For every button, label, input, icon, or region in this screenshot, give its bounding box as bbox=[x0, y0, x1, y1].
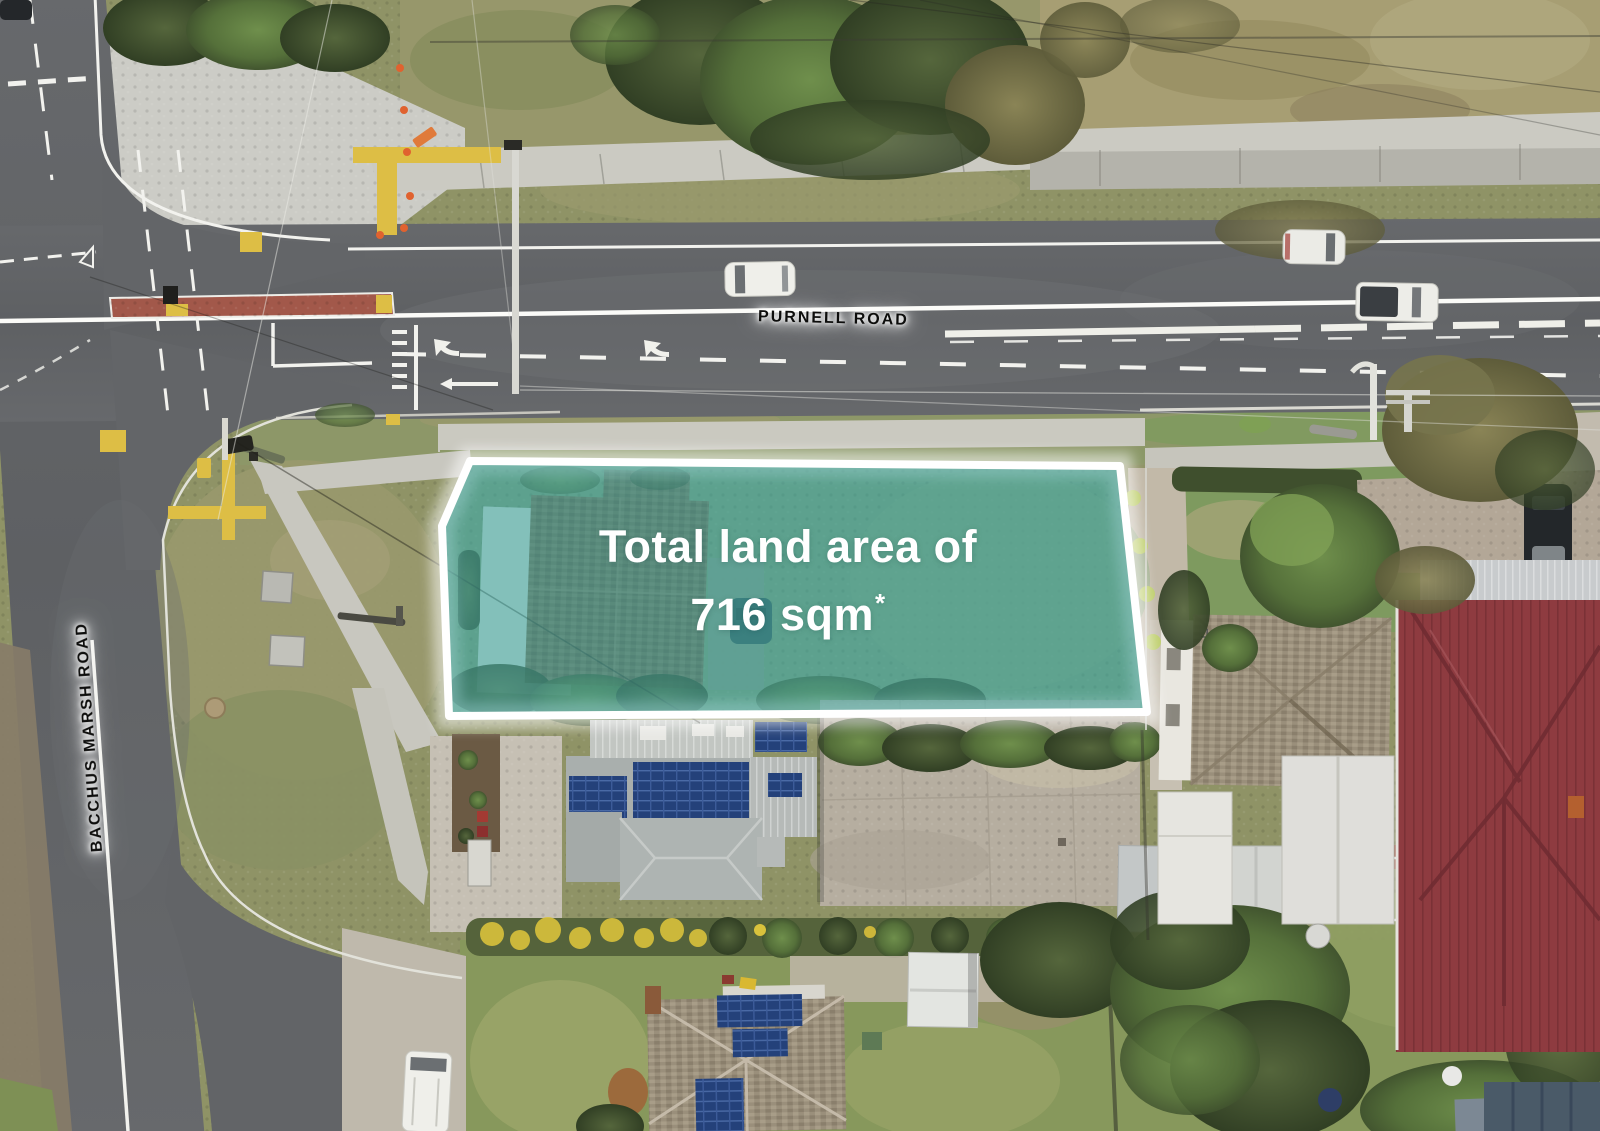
white-extension bbox=[1158, 792, 1232, 924]
utility-box bbox=[261, 571, 293, 603]
solar-array bbox=[695, 1078, 744, 1131]
white-post bbox=[222, 418, 228, 460]
dark-car bbox=[0, 0, 32, 20]
power-pole bbox=[1404, 390, 1412, 432]
solar-array bbox=[569, 776, 627, 818]
satellite-dish bbox=[1442, 1066, 1462, 1086]
bin bbox=[477, 811, 488, 822]
yellow-equipment bbox=[739, 977, 756, 990]
rust-container bbox=[645, 986, 661, 1014]
red-roof-house bbox=[1375, 546, 1600, 1131]
manhole bbox=[205, 698, 225, 718]
utility-box bbox=[269, 635, 305, 667]
hvac-unit bbox=[1306, 924, 1330, 948]
purnell-road-label: PURNELL ROAD bbox=[758, 308, 909, 330]
aerial-photo: PURNELL ROAD BACCHUS MARSH ROAD Total la… bbox=[0, 0, 1600, 1131]
frontage-footpath bbox=[438, 418, 1145, 452]
solar-array bbox=[633, 762, 749, 818]
building-roof-west bbox=[566, 812, 622, 882]
solar-array bbox=[768, 773, 802, 797]
solar-array bbox=[732, 1028, 787, 1057]
trampoline bbox=[1318, 1088, 1342, 1112]
white-suv bbox=[725, 261, 796, 296]
headline-asterisk: * bbox=[875, 588, 886, 618]
green-box bbox=[862, 1032, 882, 1050]
headline-area-value: 716 sqm bbox=[690, 589, 874, 640]
signboard bbox=[468, 840, 491, 886]
white-ute bbox=[1356, 282, 1439, 321]
signal-mast bbox=[512, 146, 519, 394]
solar-array bbox=[717, 994, 803, 1027]
traffic-signal bbox=[504, 140, 522, 150]
white-sedan bbox=[1283, 229, 1346, 264]
white-van bbox=[402, 1051, 452, 1131]
street-light-pole bbox=[1370, 364, 1377, 440]
retaining-wall bbox=[1030, 148, 1600, 190]
headline-line1: Total land area of bbox=[599, 521, 977, 572]
chimney bbox=[1568, 796, 1584, 818]
land-area-headline: Total land area of 716 sqm* bbox=[538, 518, 1038, 643]
bin bbox=[477, 826, 488, 837]
